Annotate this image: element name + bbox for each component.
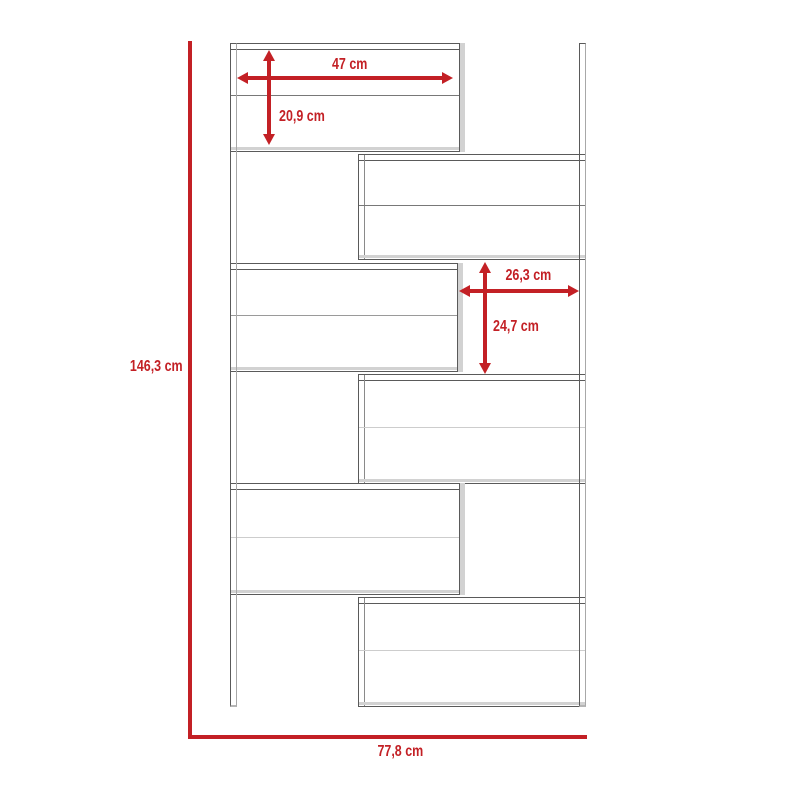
side-panel-line (364, 598, 365, 706)
shelf-height-label: 20,9 cm (279, 107, 338, 127)
shelf-divider-line (359, 650, 585, 651)
cubby-width-arrow (459, 289, 579, 293)
shelf-box-mid-left (230, 263, 458, 372)
shelf-box-bottom-right (358, 597, 586, 707)
arrow-head-right-icon (568, 285, 579, 297)
cubby-height-label: 24,7 cm (493, 317, 552, 337)
arrow-head-down-icon (479, 363, 491, 374)
overall-width-label: 77,8 cm (300, 742, 500, 762)
overall-width-dimension-line (188, 735, 587, 739)
shelf-divider-line (231, 537, 459, 538)
side-panel-line (364, 375, 365, 483)
arrow-shaft (246, 76, 444, 80)
shelf-divider-line (359, 205, 585, 206)
overall-height-label: 146,3 cm (115, 357, 183, 377)
shelf-box-upper-right (358, 154, 586, 260)
shelf-box-lower-left (230, 483, 460, 595)
shelf-divider-line (231, 95, 459, 96)
overall-height-dimension-line (188, 41, 192, 739)
arrow-head-down-icon (263, 134, 275, 145)
shelf-divider-line (359, 427, 585, 428)
cubby-width-label: 26,3 cm (428, 266, 628, 286)
side-panel-line (364, 155, 365, 259)
shelf-divider-line (231, 315, 457, 316)
shelf-width-label: 47 cm (250, 55, 450, 75)
shelf-box-mid-right (358, 374, 586, 484)
dimension-diagram: 146,3 cm 77,8 cm 47 cm 20,9 cm 26,3 cm 2… (0, 0, 800, 800)
left-side-rail (230, 43, 237, 707)
right-side-rail (579, 43, 586, 707)
